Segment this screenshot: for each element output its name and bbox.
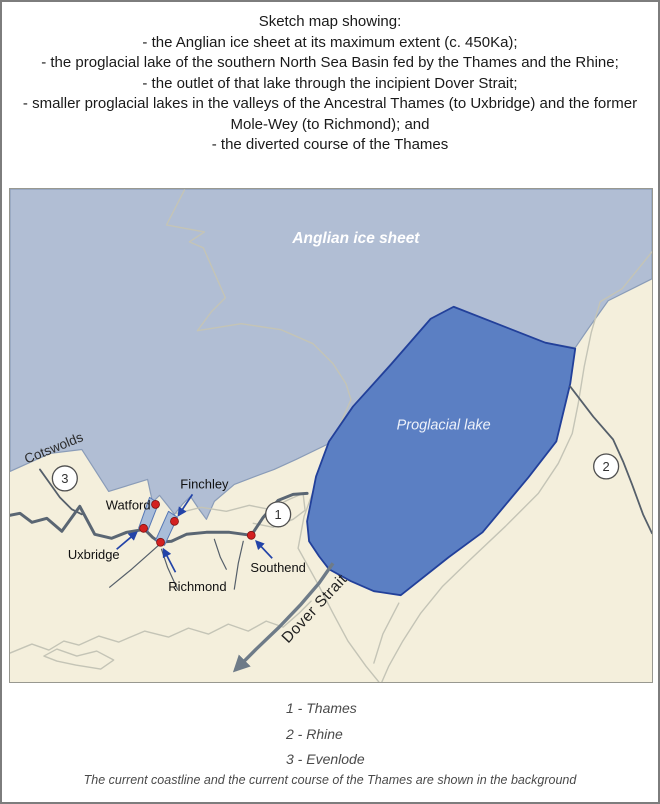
sketch-map-figure: Sketch map showing: - the Anglian ice sh…	[0, 0, 660, 804]
river-number-rhine: 2	[594, 454, 619, 479]
caption-bullet-diverted-course: - the diverted course of the Thames	[10, 135, 650, 156]
caption-bullet-outlet: - the outlet of that lake through the in…	[10, 74, 650, 95]
place-marker-finchley	[171, 517, 179, 525]
river-number-thames: 1	[266, 502, 291, 527]
caption-heading: Sketch map showing:	[10, 12, 650, 33]
legend: 1 - Thames 2 - Rhine 3 - Evenlode	[286, 696, 365, 773]
circle-3-label: 3	[61, 471, 68, 486]
label-uxbridge: Uxbridge	[68, 547, 120, 562]
label-southend: Southend	[250, 560, 305, 575]
label-richmond: Richmond	[168, 579, 226, 594]
legend-item-evenlode: 3 - Evenlode	[286, 747, 365, 773]
legend-note: The current coastline and the current co…	[10, 773, 650, 787]
map-svg: 1 2 3 Anglian ice sheet Proglaci	[10, 189, 652, 682]
circle-2-label: 2	[603, 459, 610, 474]
legend-item-rhine: 2 - Rhine	[286, 722, 365, 748]
figure-caption: Sketch map showing: - the Anglian ice sh…	[10, 12, 650, 156]
caption-bullet-proglacial-lake: - the proglacial lake of the southern No…	[10, 53, 650, 74]
map-panel: 1 2 3 Anglian ice sheet Proglaci	[9, 188, 653, 683]
legend-item-thames: 1 - Thames	[286, 696, 365, 722]
label-watford: Watford	[106, 497, 151, 512]
label-anglian-ice-sheet: Anglian ice sheet	[291, 230, 420, 247]
caption-bullet-ice-sheet: - the Anglian ice sheet at its maximum e…	[10, 33, 650, 54]
label-proglacial-lake: Proglacial lake	[397, 418, 491, 434]
place-marker-richmond	[157, 538, 165, 546]
place-marker-watford	[152, 500, 160, 508]
river-number-evenlode: 3	[52, 466, 77, 491]
caption-bullet-smaller-lakes: - smaller proglacial lakes in the valley…	[10, 94, 650, 135]
place-marker-uxbridge	[140, 524, 148, 532]
label-finchley: Finchley	[180, 476, 229, 491]
circle-1-label: 1	[275, 507, 282, 522]
place-marker-southend	[247, 531, 255, 539]
